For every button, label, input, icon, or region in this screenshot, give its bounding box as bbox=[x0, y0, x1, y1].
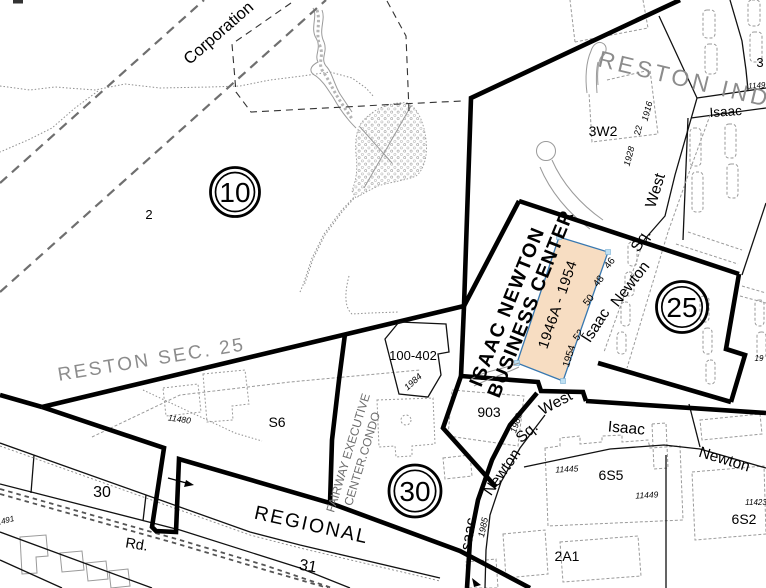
svg-text:10: 10 bbox=[219, 177, 250, 208]
svg-text:11423: 11423 bbox=[745, 498, 766, 507]
svg-text:6S2: 6S2 bbox=[732, 511, 757, 527]
svg-text:3: 3 bbox=[756, 55, 763, 70]
svg-text:11445: 11445 bbox=[555, 463, 579, 474]
svg-text:2A1: 2A1 bbox=[555, 548, 580, 564]
svg-text:31: 31 bbox=[298, 557, 319, 577]
svg-text:Isaac: Isaac bbox=[607, 418, 646, 438]
svg-text:Isaac: Isaac bbox=[709, 103, 742, 120]
svg-text:3W2: 3W2 bbox=[589, 123, 618, 139]
svg-text:S6: S6 bbox=[268, 414, 285, 430]
svg-text:11449: 11449 bbox=[635, 489, 659, 500]
svg-text:1149: 1149 bbox=[748, 80, 766, 90]
svg-text:2: 2 bbox=[145, 207, 152, 222]
svg-text:30: 30 bbox=[93, 484, 111, 501]
svg-text:100-402: 100-402 bbox=[389, 348, 437, 363]
svg-text:903: 903 bbox=[477, 404, 501, 420]
svg-text:30: 30 bbox=[399, 476, 430, 507]
svg-text:25: 25 bbox=[666, 292, 697, 323]
svg-text:19: 19 bbox=[755, 354, 764, 363]
svg-text:6S5: 6S5 bbox=[599, 467, 624, 483]
